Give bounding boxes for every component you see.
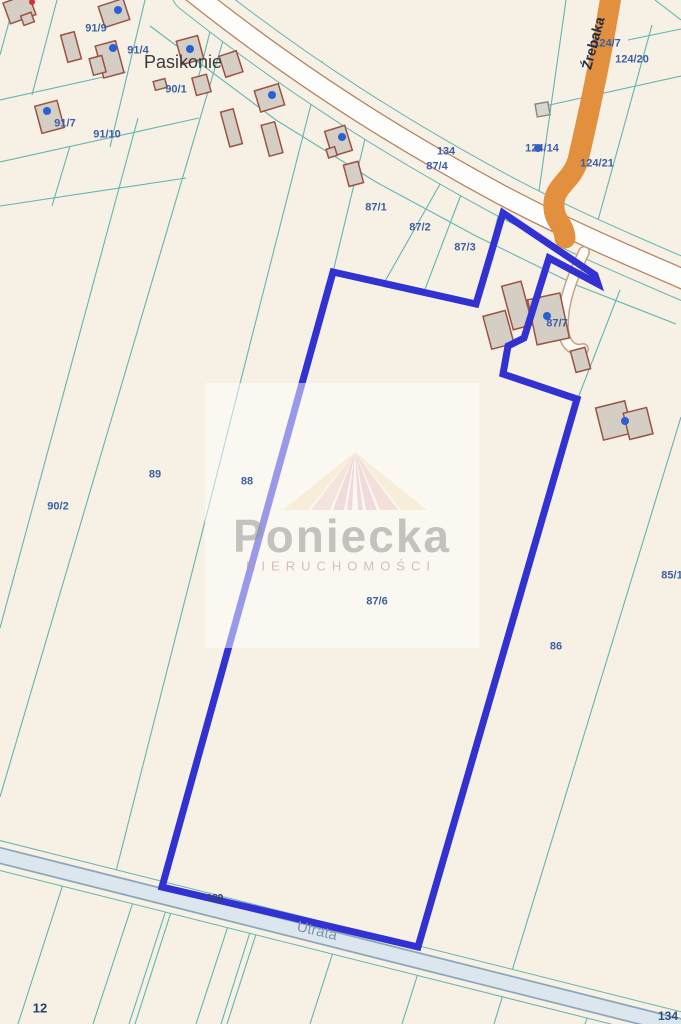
parcel-label-87-2: 87/2 [409,223,430,234]
watermark-brand: Poniecka [233,509,451,563]
address-point-icon [268,91,276,99]
parcel-label-134: 134 [437,147,455,158]
watermark-subtitle: NIERUCHOMOŚCI [246,559,436,574]
address-point-icon [338,133,346,141]
parcel-label-86: 86 [550,642,562,653]
building [326,147,337,158]
address-point-icon [109,44,117,52]
parcel-label-85-1: 85/1 [661,571,681,582]
parcel-label-124-21: 124/21 [580,159,614,170]
parcel-label-12: 12 [33,1002,47,1015]
parcel-label-134-bottom: 134 [658,1010,678,1022]
parcel-label-90-1: 90/1 [165,85,186,96]
parcel-label-87-7: 87/7 [546,319,567,330]
parcel-label-90-2: 90/2 [47,502,68,513]
parcel-label-91-7: 91/7 [54,119,75,130]
building [61,32,82,63]
parcel-label-87-6: 87/6 [366,597,387,608]
building [535,102,550,117]
parcel-label-87-4: 87/4 [426,162,447,173]
address-point-icon [621,417,629,425]
address-point-icon [114,6,122,14]
parcel-label-91-4: 91/4 [127,46,148,57]
utrata-road [0,853,681,1024]
parcel-label-87-1: 87/1 [365,203,386,214]
building [192,74,211,95]
parcel-label-87-3: 87/3 [454,243,475,254]
address-point-icon [43,107,51,115]
parcel-label-91-10: 91/10 [93,130,121,141]
parcel-label-88: 88 [241,477,253,488]
parcel-label-139: 139 [207,894,224,904]
parcel-label-91-9: 91/9 [85,24,106,35]
building [261,122,283,157]
building [343,161,363,186]
parcel-label-89: 89 [149,470,161,481]
parcel-label-124-20: 124/20 [615,55,649,66]
parcel-label-124-14: 124/14 [525,144,559,155]
building [221,109,243,147]
place-label-pasikonie: Pasikonie [144,53,222,71]
cadastral-map-canvas[interactable]: Poniecka NIERUCHOMOŚCI Pasikonie 91/9 91… [0,0,681,1024]
